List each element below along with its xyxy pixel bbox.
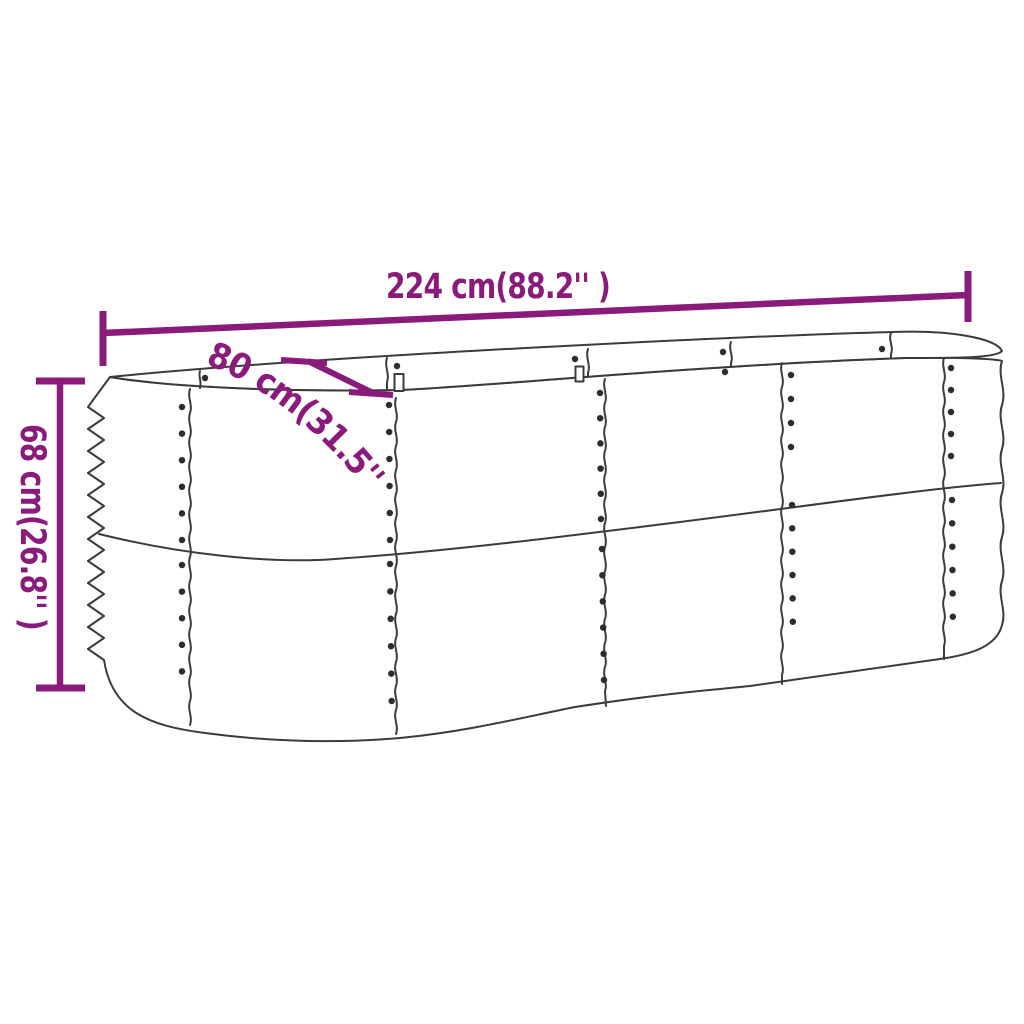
length-dimension-label: 224 cm(88.2'' )	[386, 267, 610, 307]
width-dimension-cap-upper	[281, 360, 327, 363]
rivet	[572, 356, 578, 362]
rim-bracket	[576, 367, 584, 382]
height-dimension: 68 cm(26.8'' )	[12, 381, 85, 688]
dimension-diagram: 224 cm(88.2'' ) 68 cm(26.8'' ) 80 cm(31.…	[0, 0, 1024, 1024]
height-dimension-label: 68 cm(26.8'' )	[12, 424, 52, 630]
rivet	[202, 375, 208, 381]
planter-body-outline	[88, 358, 1003, 741]
rivet-column	[952, 500, 953, 640]
rivet	[879, 346, 885, 352]
diagram-canvas: 224 cm(88.2'' ) 68 cm(26.8'' ) 80 cm(31.…	[0, 0, 1024, 1024]
planter-drawing	[88, 332, 1003, 741]
rim-seam	[199, 371, 200, 388]
width-dimension-cap-lower	[349, 392, 393, 395]
rivet	[720, 349, 726, 355]
rivet	[394, 363, 400, 369]
rivet	[722, 369, 728, 375]
rim-bracket	[395, 374, 404, 391]
rivet-column	[390, 564, 392, 728]
rivet-column	[792, 505, 793, 645]
